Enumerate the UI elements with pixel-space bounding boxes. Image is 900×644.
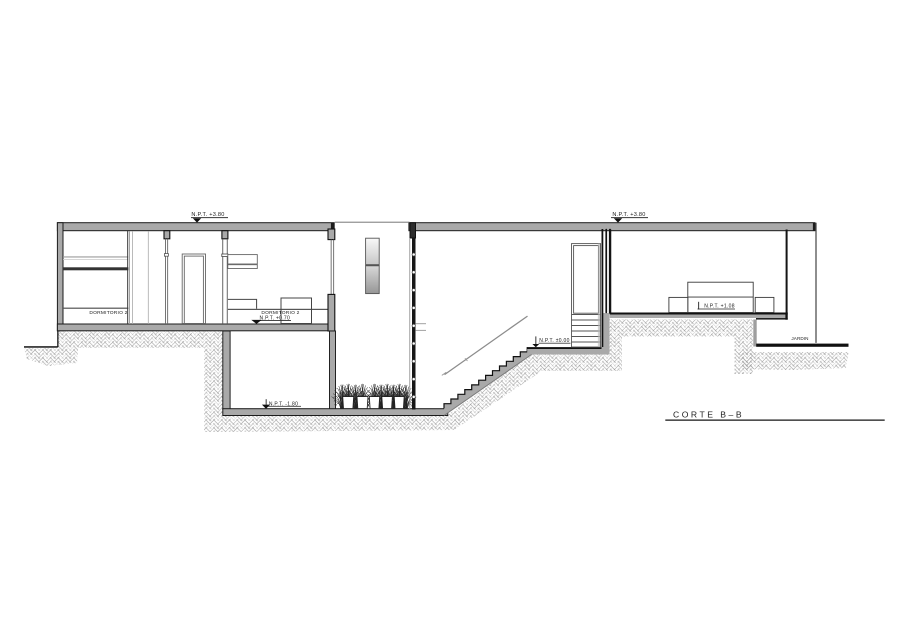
svg-text:DORMITORIO 2: DORMITORIO 2 <box>89 310 127 316</box>
svg-text:JARDIN: JARDIN <box>791 336 808 341</box>
svg-text:CORTE B–B: CORTE B–B <box>673 409 744 419</box>
svg-text:N.P.T. +3.80: N.P.T. +3.80 <box>612 212 645 218</box>
svg-text:N.P.T. +3.80: N.P.T. +3.80 <box>191 212 224 218</box>
